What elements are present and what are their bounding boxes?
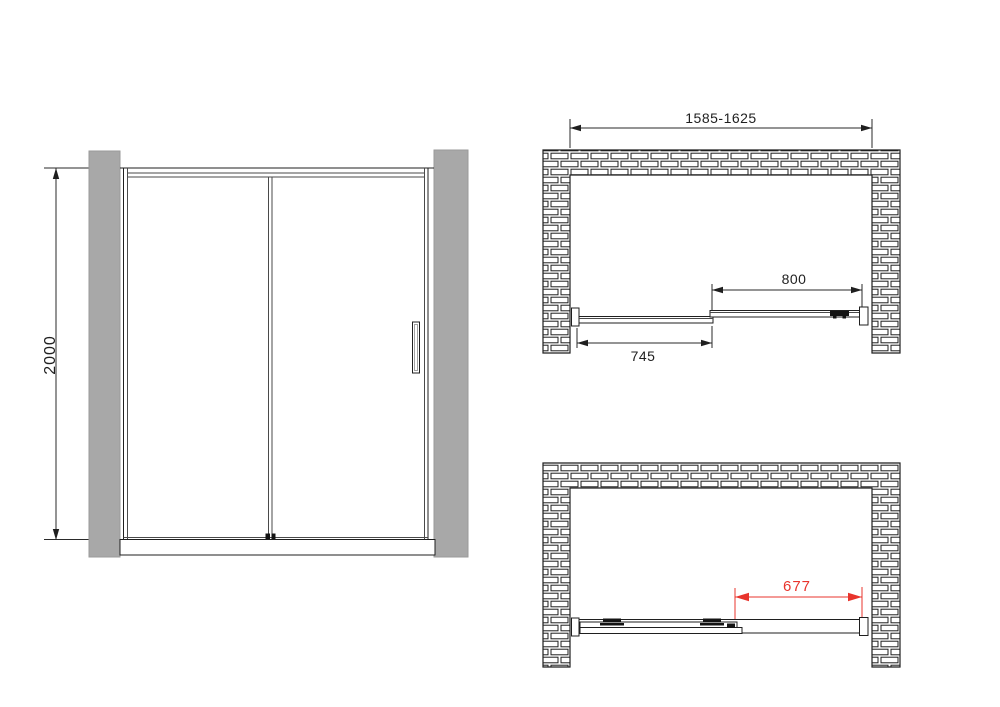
roller-carriage-left [600, 619, 624, 626]
height-dimension: 2000 [42, 168, 89, 540]
panel-edge-stopper [727, 624, 735, 629]
fixed-panel-dimension: 745 [577, 326, 712, 364]
clear-opening-label: 677 [783, 578, 811, 595]
door-assembly-open [572, 618, 869, 637]
front-elevation-view: 2000 [42, 150, 468, 557]
brick-wall-open [543, 463, 900, 667]
arrowhead-right-icon [861, 125, 872, 131]
left-wall-pillar [89, 151, 120, 557]
arrowhead-left-icon [570, 125, 581, 131]
arrowhead-left-icon [735, 593, 749, 601]
drawing-svg: 2000 [0, 0, 1000, 707]
fixed-panel-stacked [580, 628, 742, 634]
arrowhead-right-icon [701, 340, 712, 346]
sliding-panel-dimension: 800 [712, 271, 862, 314]
sliding-panel-width-label: 800 [782, 271, 807, 287]
wall-profile-left [572, 618, 580, 636]
handle-plan [830, 311, 849, 316]
arrowhead-right-icon [848, 593, 862, 601]
height-dimension-label: 2000 [42, 335, 59, 375]
door-frame [120, 168, 434, 540]
technical-drawing: 2000 [0, 0, 1000, 707]
arrowhead-left-icon [577, 340, 588, 346]
wall-profile-right [860, 618, 869, 636]
overall-width-dimension: 1585-1625 [570, 110, 872, 148]
roller-body [603, 619, 621, 623]
handle-foot-right [843, 316, 847, 319]
arrowhead-left-icon [712, 287, 723, 293]
bottom-guide-block-left [266, 534, 271, 540]
roller-base [600, 623, 624, 626]
roller-body [703, 619, 721, 623]
overall-width-label: 1585-1625 [685, 110, 756, 126]
arrowhead-up-icon [53, 168, 59, 179]
plan-view-closed: 1585-1625 800 745 [543, 110, 900, 364]
wall-profile-right [860, 307, 869, 325]
roller-base [700, 623, 724, 626]
door-handle [413, 322, 420, 373]
plan-view-open: 677 [543, 463, 900, 667]
handle-foot-left [833, 316, 837, 319]
roller-carriage-right [700, 619, 724, 626]
right-wall-pillar [434, 150, 468, 557]
arrowhead-right-icon [851, 287, 862, 293]
shower-tray [120, 540, 435, 556]
handle-inner [415, 325, 418, 371]
arrowhead-down-icon [53, 529, 59, 540]
wall-profile-left [572, 308, 580, 326]
fixed-panel-width-label: 745 [631, 348, 656, 364]
bottom-guide-block-right [272, 534, 276, 540]
door-assembly-closed [572, 307, 869, 326]
fixed-panel [579, 317, 713, 324]
